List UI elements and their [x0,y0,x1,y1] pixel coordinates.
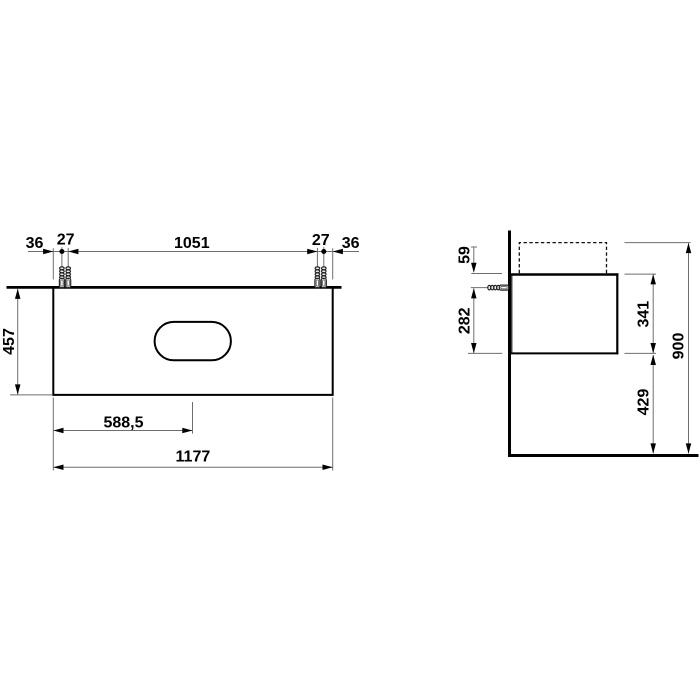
svg-text:1051: 1051 [174,235,210,252]
svg-text:429: 429 [635,389,652,416]
svg-text:588,5: 588,5 [103,414,143,431]
svg-text:59: 59 [457,246,474,264]
svg-text:27: 27 [312,232,330,249]
svg-text:341: 341 [635,301,652,328]
svg-text:457: 457 [1,328,18,355]
svg-text:36: 36 [26,235,44,252]
svg-text:1177: 1177 [176,448,211,465]
svg-text:36: 36 [342,235,360,252]
svg-text:282: 282 [457,307,474,334]
svg-text:27: 27 [57,232,75,249]
svg-text:900: 900 [671,333,688,360]
